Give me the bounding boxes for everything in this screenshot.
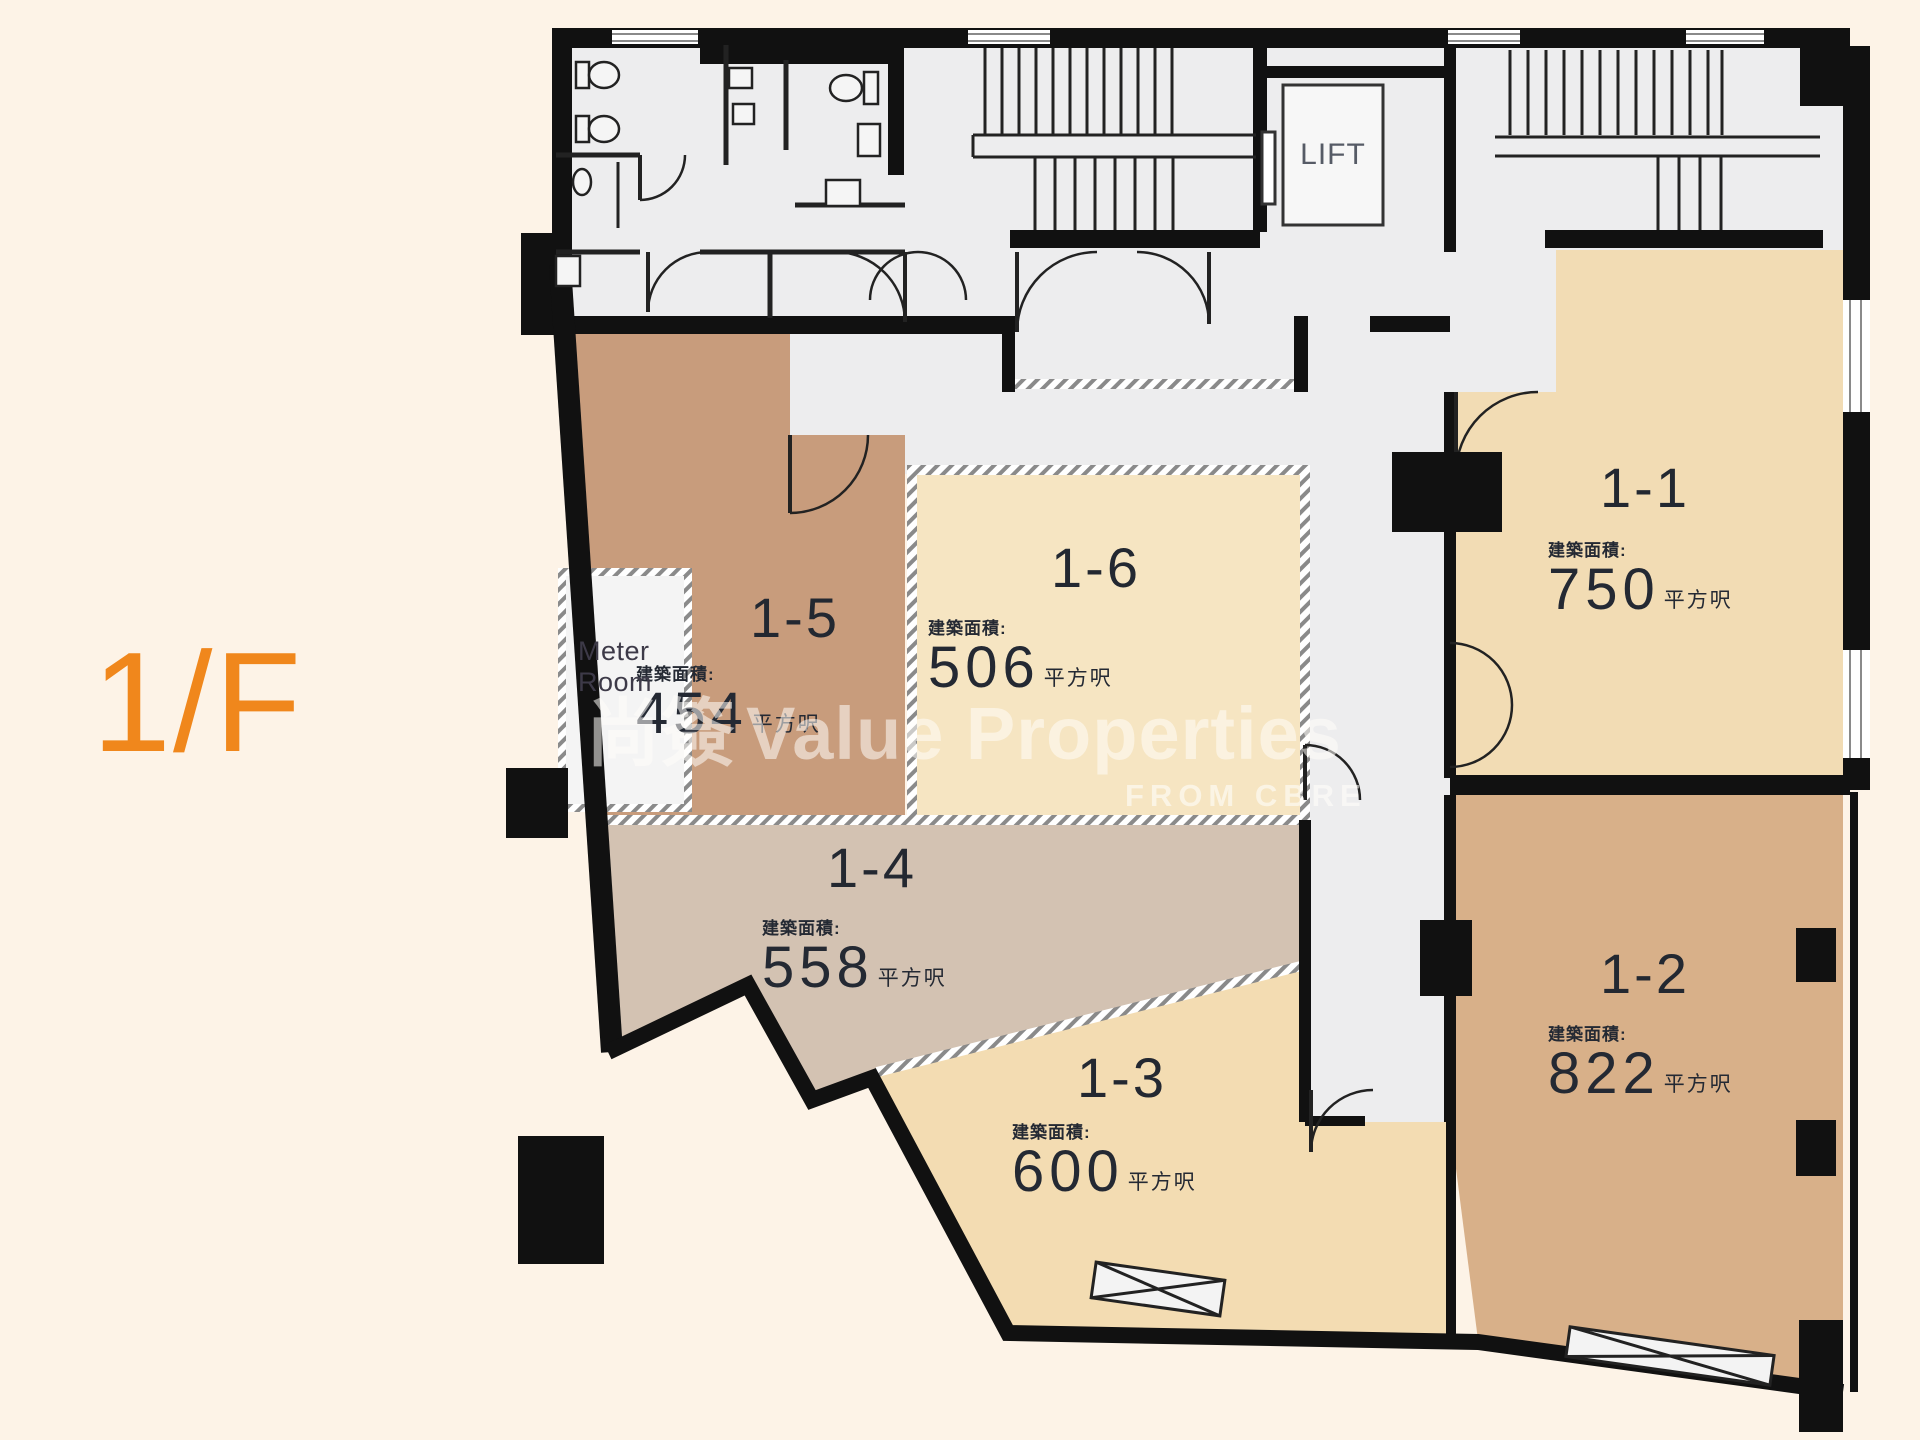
floorplan-page: 1/F 1-1 建築面積: 750 平方呎 1-2 建築面積: 822 平方呎 … (0, 0, 1920, 1440)
unit-1-3-label: 1-3 (1077, 1050, 1167, 1106)
watermark-logo: 尚簽 (586, 692, 736, 775)
watermark-brand: Value Properties (746, 692, 1342, 775)
meter-room-line1: Meter (578, 636, 652, 667)
unit-1-1-area: 建築面積: 750 平方呎 (1548, 542, 1733, 619)
unit-1-2-label: 1-2 (1600, 946, 1690, 1002)
unit-1-4-area: 建築面積: 558 平方呎 (762, 920, 947, 997)
unit-1-5-label: 1-5 (750, 590, 840, 646)
area-value: 558 (762, 939, 874, 997)
area-unit: 平方呎 (1128, 1166, 1197, 1196)
area-value: 750 (1548, 561, 1660, 619)
watermark: 尚簽Value Properties (586, 674, 1342, 781)
unit-1-1-label: 1-1 (1600, 460, 1690, 516)
area-value: 600 (1012, 1143, 1124, 1201)
area-unit: 平方呎 (1664, 1068, 1733, 1098)
unit-1-3-area: 建築面積: 600 平方呎 (1012, 1124, 1197, 1201)
unit-1-4-label: 1-4 (827, 840, 917, 896)
floor-label: 1/F (92, 632, 303, 774)
text-overlay: 1/F 1-1 建築面積: 750 平方呎 1-2 建築面積: 822 平方呎 … (0, 0, 1920, 1440)
lift-label: LIFT (1283, 85, 1383, 225)
unit-1-6-label: 1-6 (1051, 540, 1141, 596)
area-unit: 平方呎 (1664, 584, 1733, 614)
watermark-subtitle: FROM CBRE (1125, 778, 1367, 814)
area-value: 822 (1548, 1045, 1660, 1103)
unit-1-2-area: 建築面積: 822 平方呎 (1548, 1026, 1733, 1103)
area-unit: 平方呎 (878, 962, 947, 992)
